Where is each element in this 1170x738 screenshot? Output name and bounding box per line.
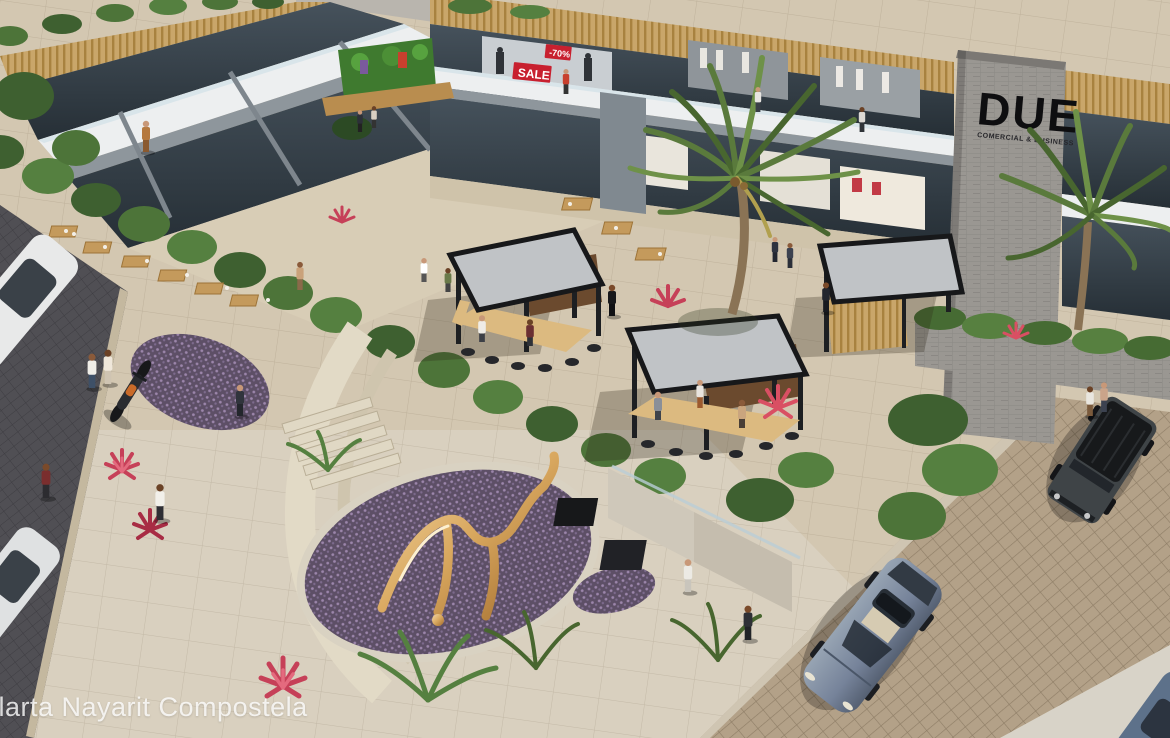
kiosk-roof [820, 236, 962, 302]
person [787, 243, 793, 268]
person [1100, 382, 1108, 412]
corner-column [600, 92, 646, 214]
lit-shop-window [840, 166, 925, 230]
red-display [398, 52, 407, 68]
person [478, 315, 486, 342]
person [654, 392, 662, 420]
person [357, 110, 363, 132]
watermark-text: llarta Nayarit Compostela [0, 692, 308, 723]
person [738, 400, 746, 428]
render-canvas: DUE COMERCIAL & BUSINESS -70% SALE [0, 0, 1170, 738]
person [421, 258, 428, 282]
person [696, 380, 703, 408]
person [526, 319, 534, 346]
person [772, 237, 778, 262]
person [563, 69, 569, 94]
black-cube-seat [599, 540, 646, 570]
scene-architectural-rendering: DUE COMERCIAL & BUSINESS -70% SALE [0, 0, 1170, 738]
purple-display [360, 60, 368, 74]
black-cube-seat [553, 498, 598, 526]
person [755, 87, 761, 112]
person [859, 107, 865, 132]
person [445, 268, 452, 292]
person [371, 106, 377, 128]
person [296, 262, 303, 290]
